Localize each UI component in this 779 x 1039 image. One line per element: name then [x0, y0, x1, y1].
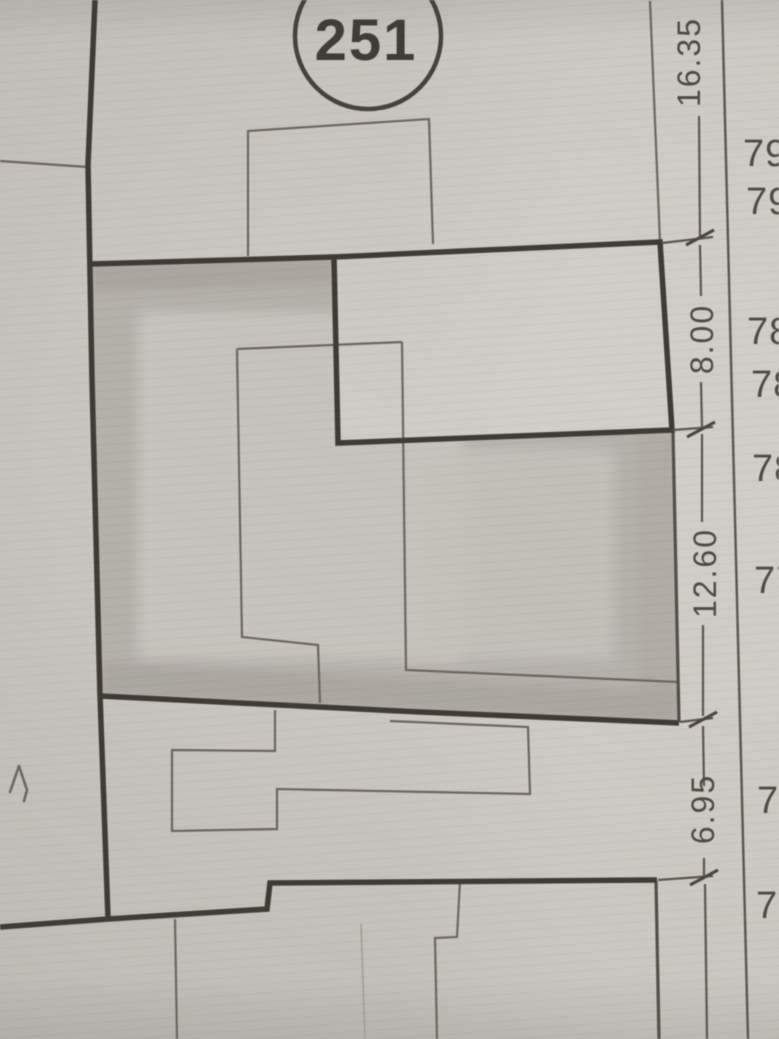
lower-parcel-boundary: [0, 880, 657, 927]
left-edge-tick-line: [0, 161, 88, 167]
paper-crease-line: [361, 924, 365, 1039]
elevation-label-6: 77: [754, 560, 779, 602]
parcel-number-text: 251: [315, 8, 418, 73]
lower-right-building-outline: [435, 881, 460, 1039]
plan-drawing: 16.35 8.00 12.60 6.95 79 79 78 78 78 77 …: [0, 0, 779, 1039]
elevation-label-1: 79: [743, 133, 779, 175]
dimension-label-12-60: 12.60: [687, 528, 723, 618]
shaded-building-block: [92, 256, 679, 722]
elevation-label-3: 78: [747, 311, 779, 353]
bottom-thin-boundary: [175, 919, 177, 1039]
elevation-label-4: 78: [751, 364, 779, 406]
elevation-label-8: 77: [756, 885, 779, 927]
cadastral-plan-photo: 16.35 8.00 12.60 6.95 79 79 78 78 78 77 …: [0, 0, 779, 1039]
dimension-label-16-35: 16.35: [671, 17, 707, 107]
light-interior-patch-right: [405, 448, 615, 660]
elevation-labels: 79 79 78 78 78 77 77 77: [743, 133, 779, 927]
top-right-boundary-line: [650, 1, 660, 242]
upper-building-outline: [248, 119, 433, 256]
lower-parcel-right-edge: [656, 881, 659, 1039]
lower-left-building-outline: [172, 710, 530, 831]
parcel-number-badge: 251: [295, 0, 441, 109]
elevation-label-7: 77: [757, 780, 779, 822]
extension-stub-1: [662, 237, 713, 243]
elevation-label-5: 78: [752, 448, 779, 490]
elevation-label-2: 79: [746, 181, 779, 223]
dimension-label-6-95: 6.95: [685, 774, 721, 844]
dimension-label-8-00: 8.00: [684, 304, 720, 374]
handwritten-mark: [10, 766, 27, 801]
